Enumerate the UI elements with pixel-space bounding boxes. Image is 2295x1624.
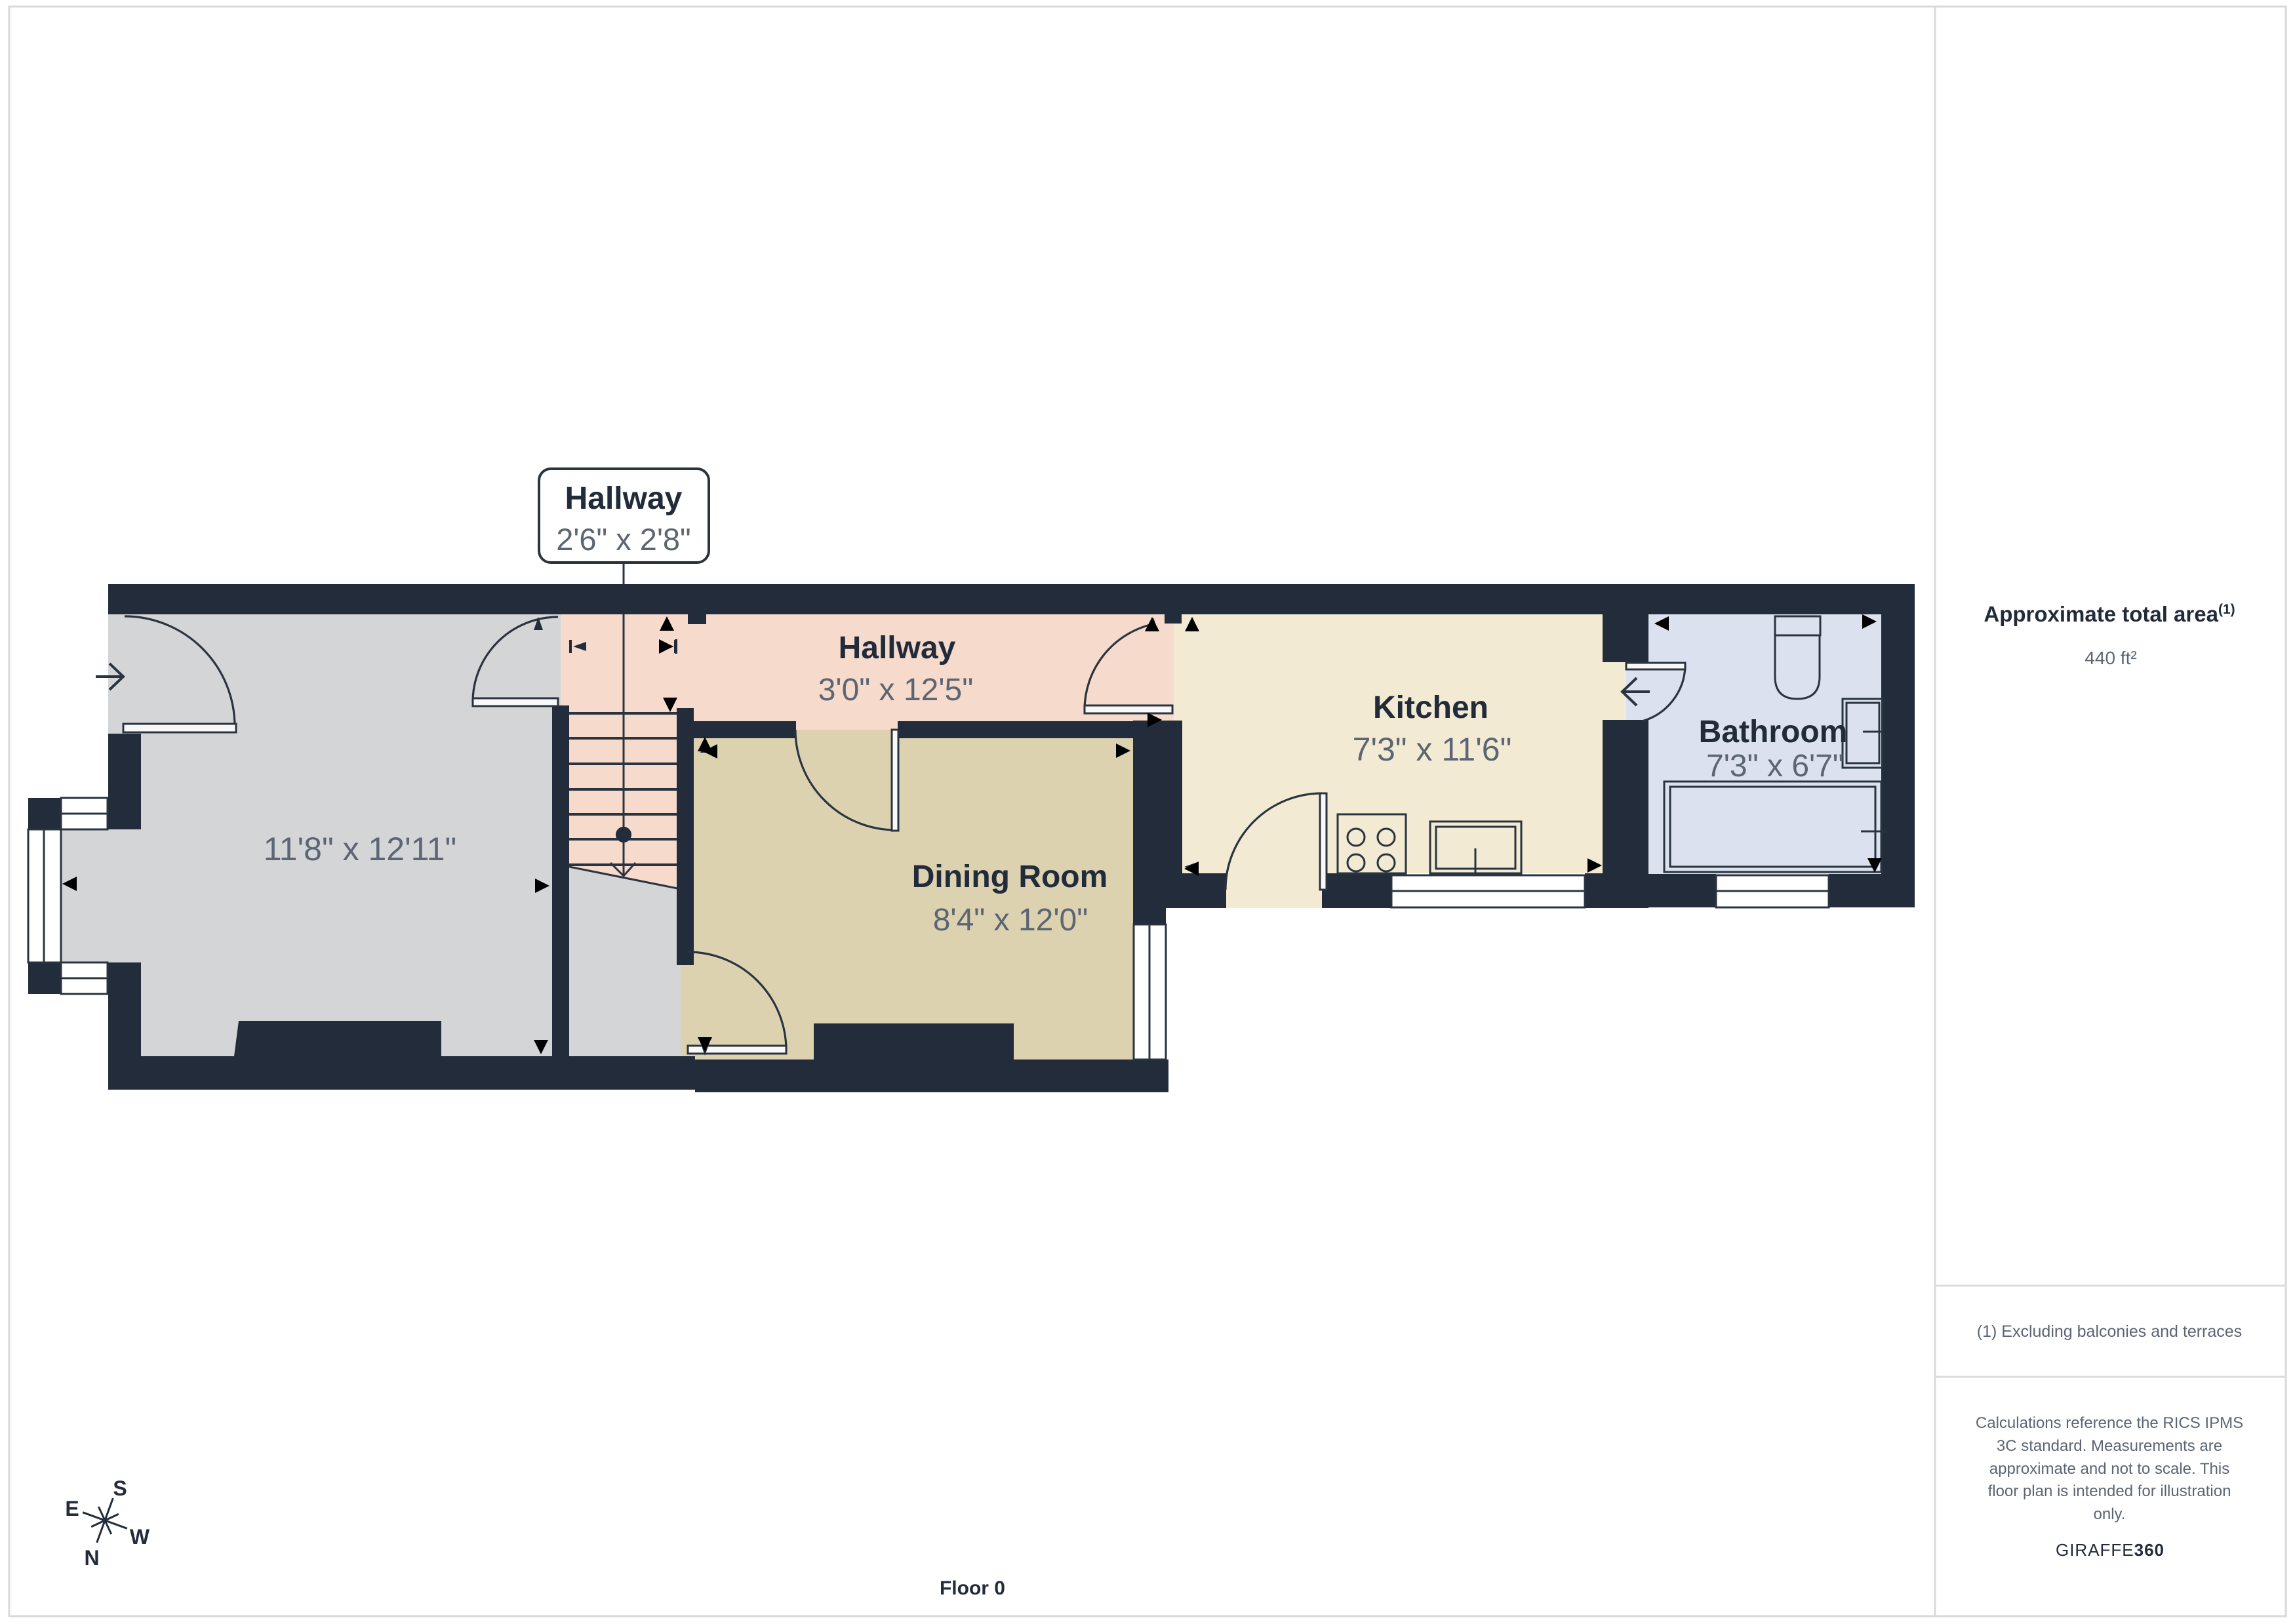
svg-text:7'3" x 6'7": 7'3" x 6'7" [1706,749,1844,783]
svg-text:Approximate total area(1): Approximate total area(1) [1984,602,2235,626]
svg-text:11'8" x 12'11": 11'8" x 12'11" [264,831,457,867]
svg-text:2'6" x 2'8": 2'6" x 2'8" [556,522,691,557]
svg-text:only.: only. [2094,1505,2126,1523]
svg-text:GIRAFFE360: GIRAFFE360 [2056,1540,2165,1560]
svg-text:(1) Excluding balconies and te: (1) Excluding balconies and terraces [1977,1322,2242,1341]
svg-text:W: W [130,1525,150,1549]
svg-text:3'0" x 12'5": 3'0" x 12'5" [818,673,974,707]
svg-text:E: E [65,1497,79,1520]
svg-text:Bathroom: Bathroom [1699,715,1848,749]
svg-text:3C standard. Measurements are: 3C standard. Measurements are [1997,1437,2222,1455]
svg-text:floor plan is intended for ill: floor plan is intended for illustration [1988,1482,2231,1500]
svg-text:7'3" x 11'6": 7'3" x 11'6" [1353,731,1512,768]
svg-text:S: S [113,1476,127,1500]
svg-text:Calculations reference the RIC: Calculations reference the RICS IPMS [1976,1414,2243,1432]
svg-text:approximate and not to scale.: approximate and not to scale. This [1989,1460,2229,1478]
svg-text:Floor 0: Floor 0 [940,1577,1005,1599]
svg-text:Dining Room: Dining Room [912,860,1108,894]
svg-text:Kitchen: Kitchen [1373,690,1488,725]
svg-text:440 ft²: 440 ft² [2085,648,2136,668]
svg-text:Hallway: Hallway [839,631,956,665]
svg-text:Hallway: Hallway [565,481,683,516]
svg-text:8'4" x 12'0": 8'4" x 12'0" [933,903,1088,938]
svg-text:N: N [84,1546,99,1570]
